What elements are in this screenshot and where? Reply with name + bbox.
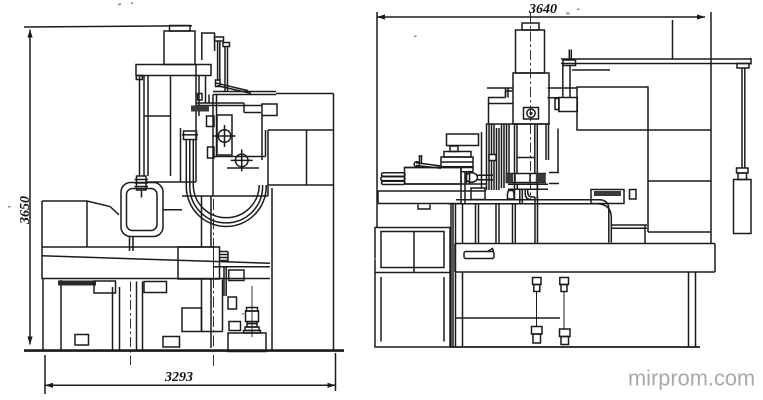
svg-text:mirprom.com: mirprom.com	[628, 366, 755, 391]
svg-text:3650: 3650	[18, 196, 33, 225]
svg-text:3640: 3640	[528, 2, 557, 17]
svg-text:3293: 3293	[164, 370, 193, 385]
